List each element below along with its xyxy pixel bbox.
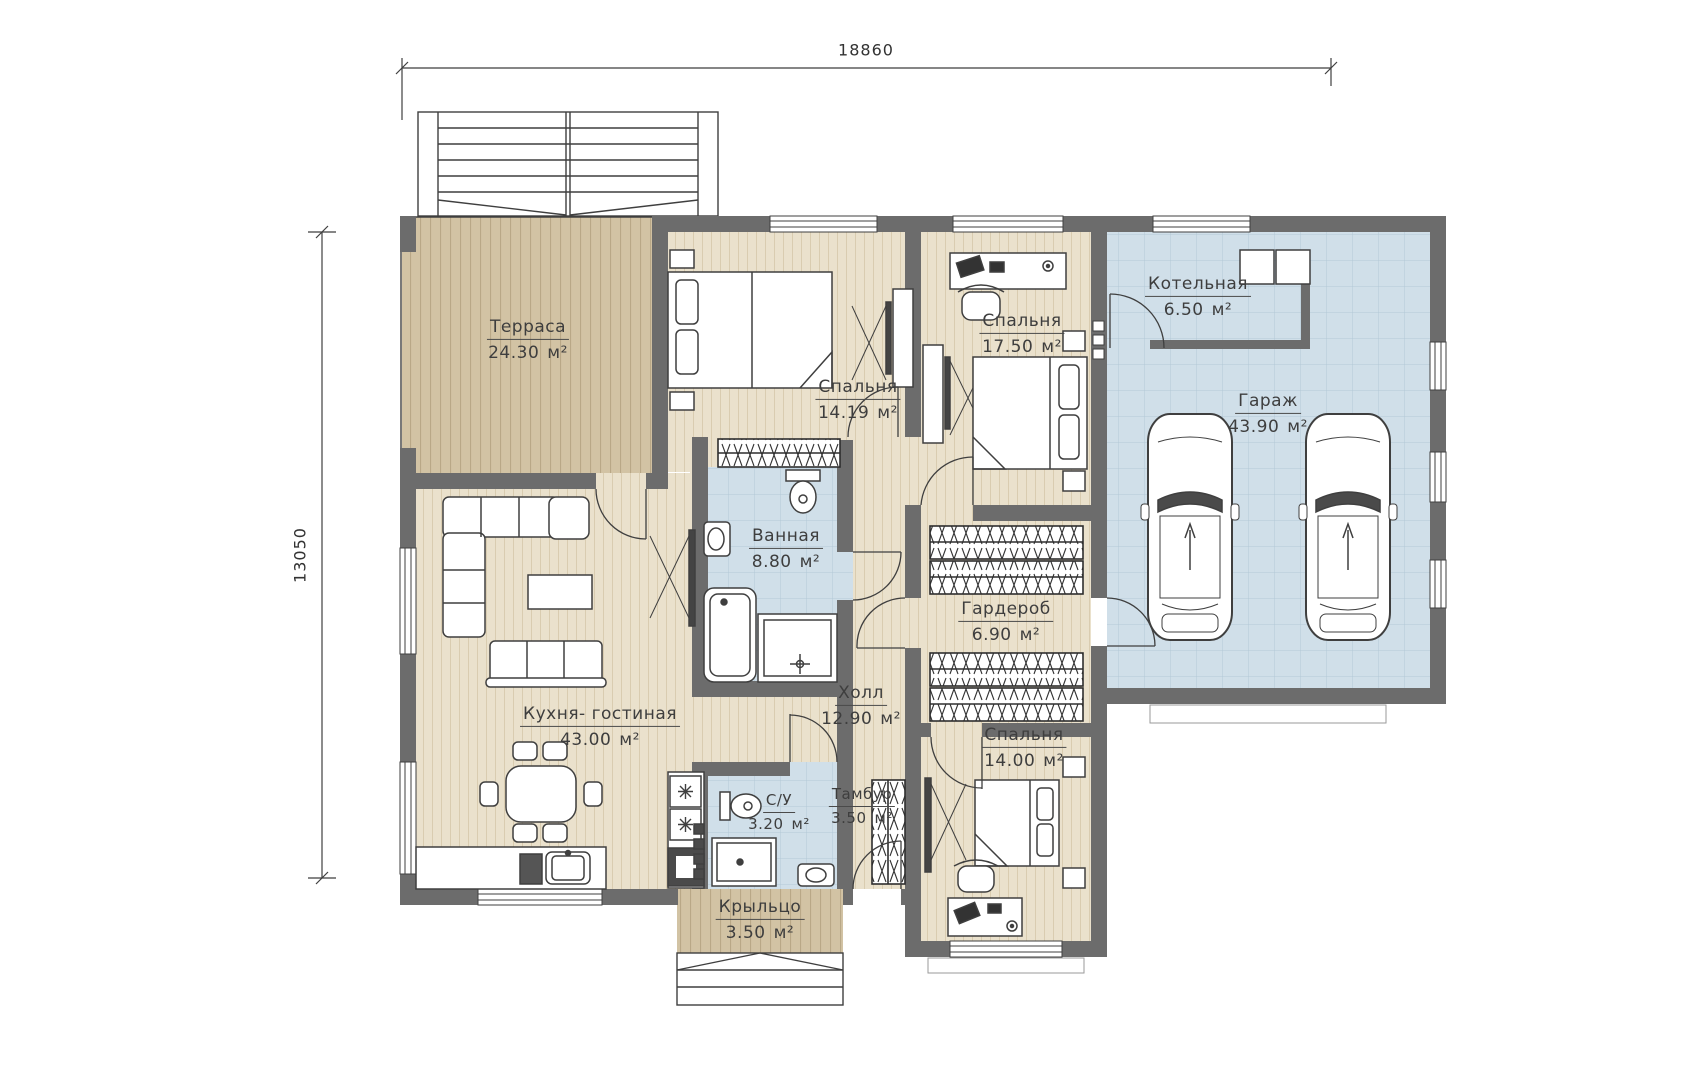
room-name: Спальня bbox=[815, 376, 900, 400]
room-label-terrace: Терраса 24.30м² bbox=[487, 316, 569, 364]
sofa bbox=[486, 641, 606, 687]
window-left-1 bbox=[400, 548, 416, 654]
room-label-wc: С/У 3.20м² bbox=[748, 790, 810, 834]
window-bedroom-3-bottom bbox=[950, 941, 1062, 957]
room-label-bedroom-1: Спальня 14.19м² bbox=[815, 376, 900, 424]
sink-bathroom bbox=[704, 522, 730, 556]
room-area: 12.90м² bbox=[821, 708, 901, 730]
room-name: Кухня- гостиная bbox=[520, 703, 680, 727]
room-area: 8.80м² bbox=[749, 551, 823, 573]
room-name: Крыльцо bbox=[716, 896, 805, 920]
room-label-vestibule: Тамбур 3.50м² bbox=[829, 784, 895, 828]
room-label-hall: Холл 12.90м² bbox=[821, 682, 901, 730]
room-label-bathroom: Ванная 8.80м² bbox=[749, 525, 823, 573]
dimension-line-left bbox=[308, 226, 336, 884]
window-left-2 bbox=[400, 762, 416, 874]
window-top-bedroom-2 bbox=[953, 216, 1063, 232]
desk-bedroom-2 bbox=[950, 253, 1066, 289]
wardrobe-bedroom-1 bbox=[893, 289, 913, 387]
room-area: 3.20м² bbox=[748, 815, 810, 835]
porch-steps bbox=[677, 953, 843, 1005]
room-name: Ванная bbox=[749, 525, 823, 549]
room-area: 3.50м² bbox=[716, 922, 805, 944]
car-right bbox=[1299, 414, 1397, 640]
room-area: 3.50м² bbox=[829, 809, 895, 829]
room-area: 43.90м² bbox=[1228, 416, 1308, 438]
room-name: Спальня bbox=[981, 724, 1066, 748]
room-label-porch: Крыльцо 3.50м² bbox=[716, 896, 805, 944]
shower-wc bbox=[712, 838, 776, 886]
room-name: Холл bbox=[835, 682, 887, 706]
window-kitchen-bottom bbox=[478, 889, 602, 905]
window-top-bedroom-1 bbox=[770, 216, 877, 232]
dimension-height: 13050 bbox=[291, 527, 310, 583]
coffee-table bbox=[528, 575, 592, 609]
room-area: 17.50м² bbox=[979, 336, 1064, 358]
room-name: Котельная bbox=[1145, 273, 1251, 297]
room-label-bedroom-2: Спальня 17.50м² bbox=[979, 310, 1064, 358]
room-area: 6.90м² bbox=[958, 624, 1053, 646]
room-label-boiler: Котельная 6.50м² bbox=[1145, 273, 1251, 321]
windows-garage-right bbox=[1430, 342, 1446, 608]
floor-plan-drawing bbox=[0, 0, 1688, 1080]
desk-bedroom-3 bbox=[948, 898, 1022, 936]
floor-plan: Терраса 24.30м² Спальня 14.19м² Спальня … bbox=[0, 0, 1688, 1080]
window-top-boiler bbox=[1153, 216, 1250, 232]
dimension-width: 18860 bbox=[838, 41, 894, 60]
car-left bbox=[1141, 414, 1239, 640]
room-area: 24.30м² bbox=[487, 342, 569, 364]
room-name: С/У bbox=[763, 791, 795, 813]
wardrobe-bedroom-2 bbox=[923, 345, 943, 443]
room-name: Тамбур bbox=[829, 785, 895, 807]
room-name: Гараж bbox=[1235, 390, 1301, 414]
room-label-kitchen-living: Кухня- гостиная 43.00м² bbox=[520, 703, 680, 751]
sink-wc bbox=[798, 864, 834, 886]
wall-vents bbox=[1093, 321, 1104, 359]
bed-bedroom-1 bbox=[668, 250, 832, 410]
bedroom-1-closet-rack bbox=[718, 439, 840, 467]
shower-bathroom bbox=[758, 614, 837, 682]
room-label-garage: Гараж 43.90м² bbox=[1228, 390, 1308, 438]
bathtub bbox=[704, 588, 756, 682]
room-name: Спальня bbox=[979, 310, 1064, 334]
room-label-wardrobe: Гардероб 6.90м² bbox=[958, 598, 1053, 646]
room-area: 14.00м² bbox=[981, 750, 1066, 772]
room-name: Терраса bbox=[487, 316, 569, 340]
room-area: 43.00м² bbox=[520, 729, 680, 751]
dimension-line-top bbox=[396, 58, 1337, 120]
room-name: Гардероб bbox=[958, 598, 1053, 622]
room-label-bedroom-3: Спальня 14.00м² bbox=[981, 724, 1066, 772]
room-area: 14.19м² bbox=[815, 402, 900, 424]
room-area: 6.50м² bbox=[1145, 299, 1251, 321]
armchair bbox=[549, 497, 589, 539]
